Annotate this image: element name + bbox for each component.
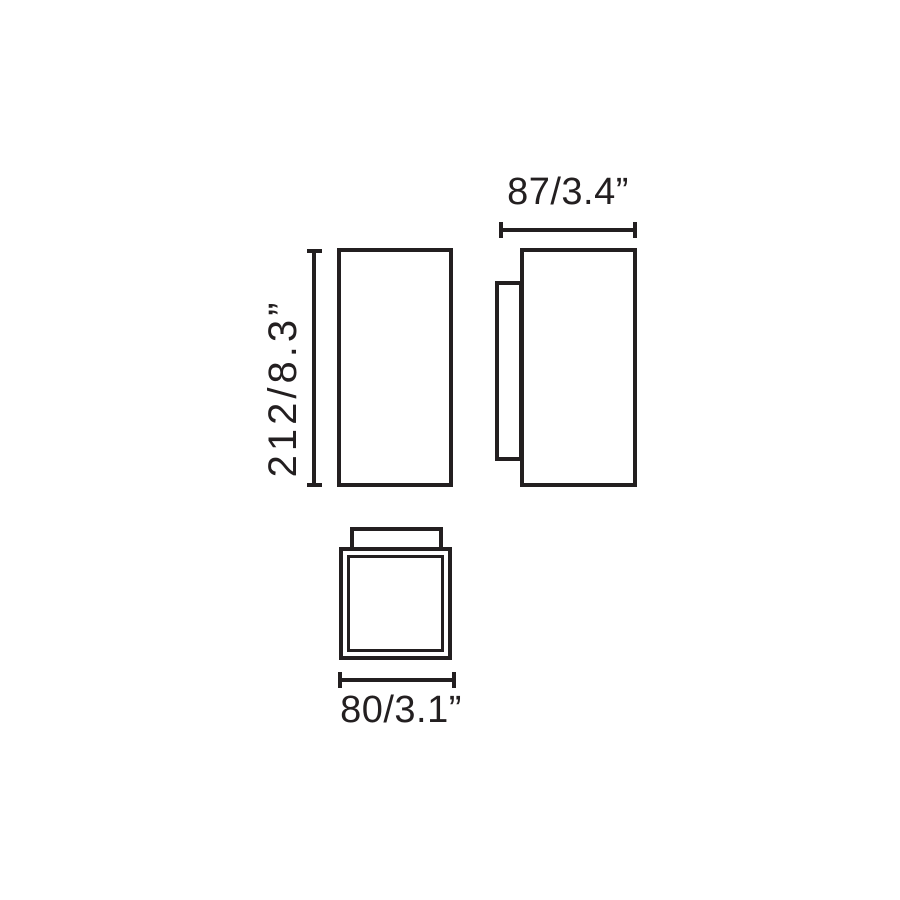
front-view-outline [337,248,453,487]
depth-dimension-label: 87/3.4” [507,173,629,211]
side-view-outline [520,248,637,487]
height-dimension-top-tick [307,249,322,253]
depth-dimension-line [499,228,637,232]
width-dimension-label: 80/3.1” [340,691,462,729]
width-dimension-right-tick [452,672,456,688]
side-view-mount-plate [495,281,523,461]
height-dimension-bottom-tick [307,483,322,487]
bottom-view-inner-outline [347,555,444,652]
height-dimension-label: 212/8.3” [263,299,303,478]
depth-dimension-right-tick [633,222,637,238]
width-dimension-left-tick [338,672,342,688]
height-dimension-line [312,249,316,487]
width-dimension-line [338,678,456,682]
technical-drawing-canvas: 212/8.3” 87/3.4” 80/3.1” [0,0,900,900]
depth-dimension-left-tick [499,222,503,238]
